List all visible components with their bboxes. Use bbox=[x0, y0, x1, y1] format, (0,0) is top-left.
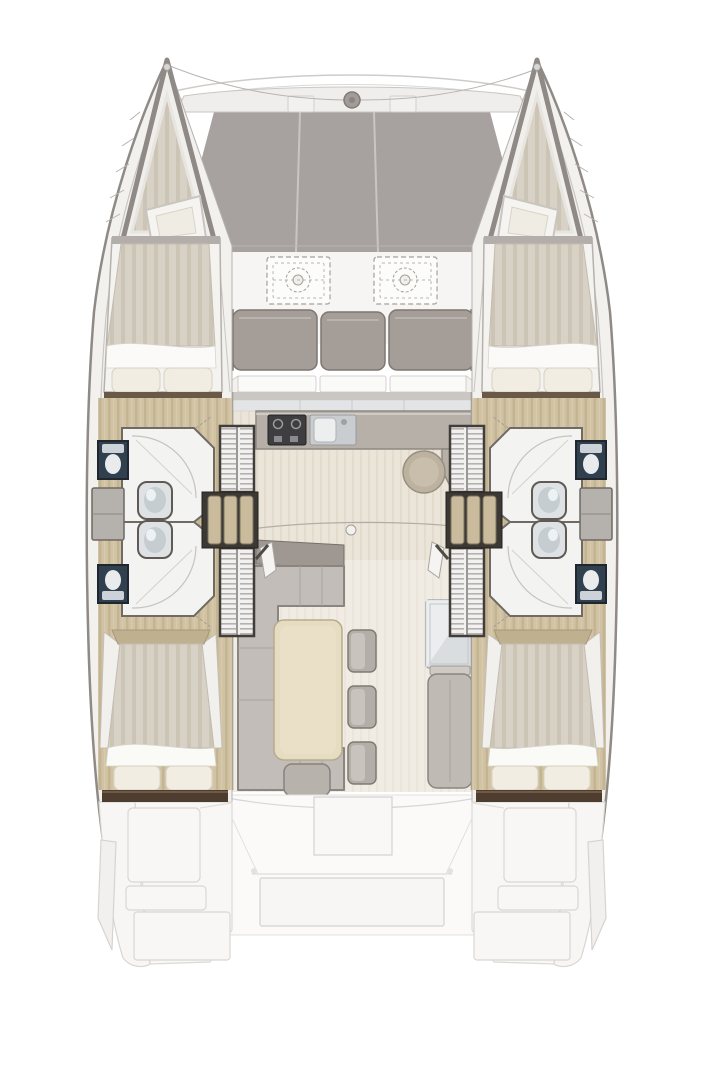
catamaran-floor-plan-page bbox=[0, 0, 703, 1080]
bench-cushion bbox=[233, 310, 317, 370]
salon bbox=[232, 392, 475, 796]
forward-bulkhead bbox=[232, 392, 472, 400]
cockpit-table bbox=[374, 257, 437, 304]
stool bbox=[284, 764, 330, 796]
mast-post-icon bbox=[346, 525, 356, 535]
aft-bench-ghost bbox=[260, 878, 444, 926]
cockpit-table-ghost bbox=[314, 797, 392, 855]
aft-cockpit-ghost bbox=[214, 795, 490, 935]
faucet-icon bbox=[341, 419, 347, 425]
trampoline bbox=[177, 112, 527, 252]
stove-icon bbox=[268, 415, 306, 445]
boat-plan bbox=[0, 0, 703, 1080]
dining-chairs bbox=[348, 630, 376, 784]
bench-cushion bbox=[389, 310, 473, 370]
cockpit-table bbox=[267, 257, 330, 304]
